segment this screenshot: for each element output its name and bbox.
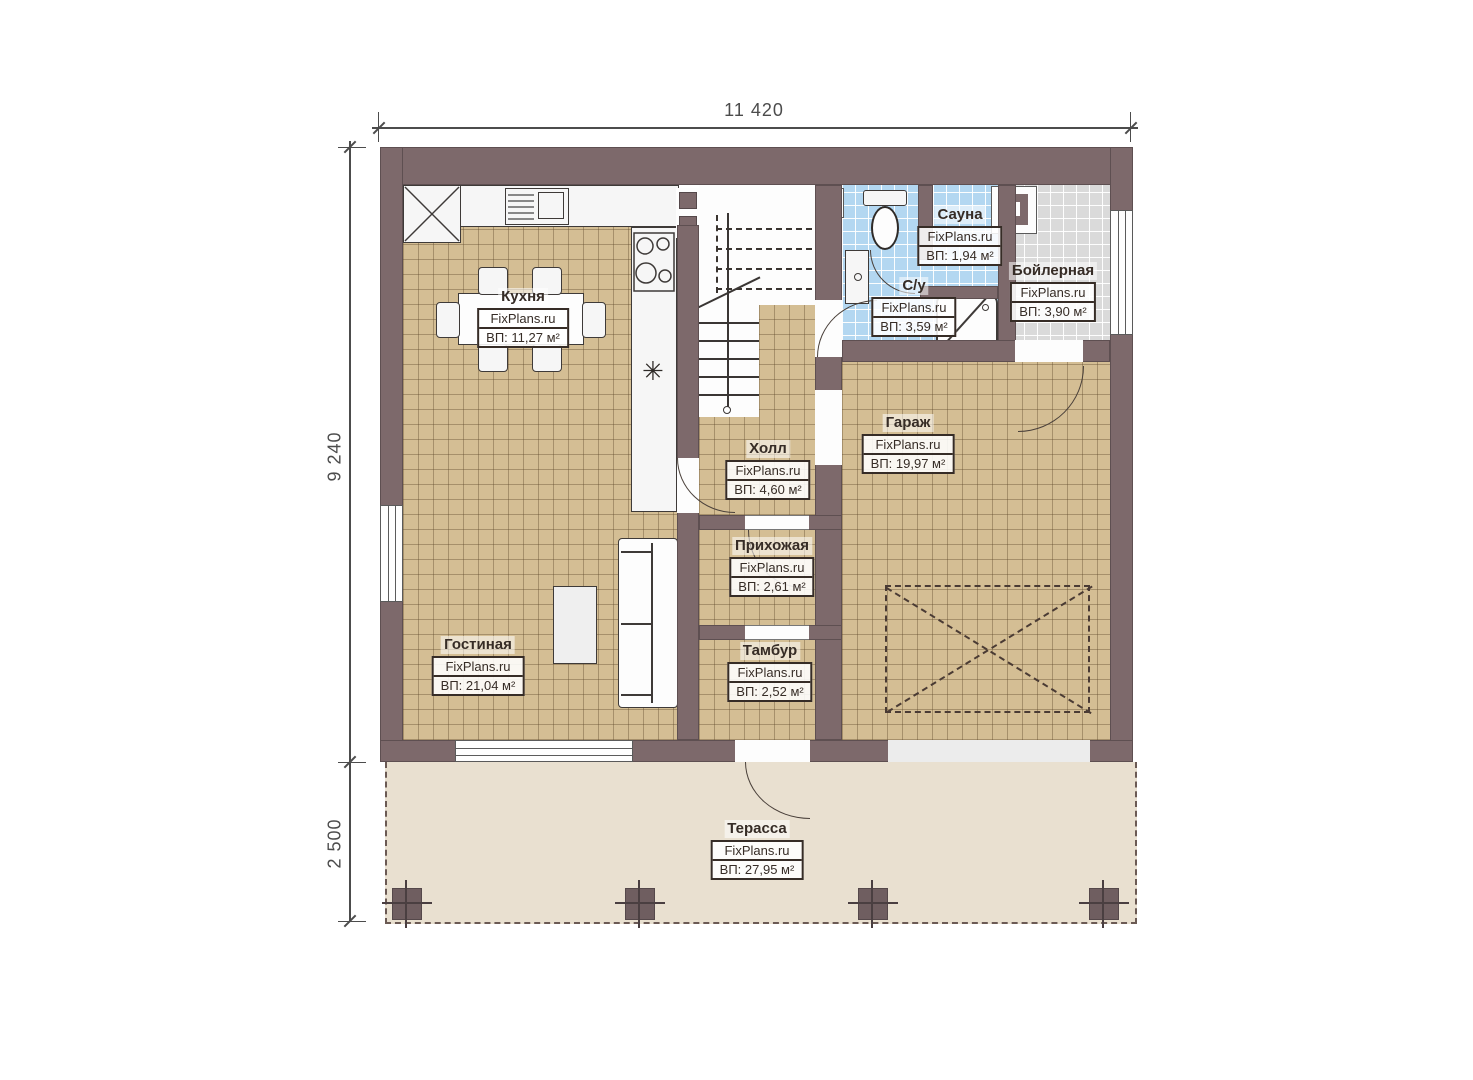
dim-ext-line	[338, 762, 366, 763]
wall-left	[380, 147, 403, 762]
room-name: Терасса	[724, 820, 789, 838]
dim-line-left	[349, 141, 351, 768]
room-name: Холл	[746, 440, 790, 458]
room-area: ВП: 4,60 м²	[727, 481, 808, 498]
stair-dashed-edge	[716, 215, 718, 293]
room-label-sauna: Сауна FixPlans.ru ВП: 1,94 м²	[917, 206, 1002, 266]
sofa-seat-line	[621, 623, 651, 625]
room-name: Гараж	[883, 414, 934, 432]
room-label-living: Гостиная FixPlans.ru ВП: 21,04 м²	[432, 636, 525, 696]
room-info-box: FixPlans.ru ВП: 11,27 м²	[477, 308, 569, 348]
watermark-text: FixPlans.ru	[919, 228, 1000, 247]
kitchen-sink-icon	[505, 188, 569, 225]
window-boiler-right	[1110, 210, 1133, 335]
stair-direction-line	[727, 213, 729, 409]
room-label-hall: Холл FixPlans.ru ВП: 4,60 м²	[725, 440, 810, 500]
door-opening-boiler-garage	[1015, 340, 1083, 362]
room-name: Бойлерная	[1009, 262, 1097, 280]
sofa-back-line	[651, 543, 653, 703]
toilet-icon	[871, 206, 899, 250]
dim-top-width: 11 420	[724, 100, 784, 121]
window-left	[380, 505, 403, 602]
toilet-tank	[863, 190, 907, 206]
x-cross-icon	[404, 186, 460, 242]
window-line	[456, 755, 632, 756]
stair-step-dashed	[716, 228, 812, 230]
sofa-armrest-line	[621, 694, 651, 696]
watermark-text: FixPlans.ru	[1012, 284, 1093, 303]
room-area: ВП: 2,52 м²	[729, 683, 810, 700]
watermark-text: FixPlans.ru	[434, 658, 523, 677]
stair-step	[699, 340, 759, 342]
window-line	[1125, 211, 1126, 334]
watermark-text: FixPlans.ru	[864, 436, 953, 455]
window-line	[456, 748, 632, 749]
stove-icon	[633, 232, 675, 292]
stair-step	[699, 322, 759, 324]
vent-shaft	[679, 192, 697, 209]
room-info-box: FixPlans.ru ВП: 4,60 м²	[725, 460, 810, 500]
terrace-post	[625, 888, 655, 920]
heater-knob	[854, 273, 862, 281]
window-line	[1118, 211, 1119, 334]
door-opening-garage	[815, 390, 842, 465]
door-opening-hall-entry	[745, 515, 809, 530]
stair-start-circle	[723, 406, 731, 414]
room-area: ВП: 1,94 м²	[919, 247, 1000, 264]
room-info-box: FixPlans.ru ВП: 1,94 м²	[917, 226, 1002, 266]
room-name: Гостиная	[441, 636, 515, 654]
dim-line-top	[372, 127, 1138, 129]
room-area: ВП: 3,90 м²	[1012, 303, 1093, 320]
dim-line-terrace	[349, 762, 351, 922]
room-area: ВП: 11,27 м²	[479, 329, 567, 346]
chair	[478, 344, 508, 372]
sink-basin	[538, 192, 564, 219]
room-area: ВП: 21,04 м²	[434, 677, 523, 694]
dim-left-height: 9 240	[325, 422, 346, 492]
stair-step-dashed	[716, 248, 812, 250]
terrace-post	[858, 888, 888, 920]
room-name: Тамбур	[740, 642, 800, 660]
shower-drain	[982, 304, 989, 311]
floor-plan-canvas: ✳	[0, 0, 1473, 1080]
room-info-box: FixPlans.ru ВП: 2,52 м²	[727, 662, 812, 702]
room-name: С/у	[899, 277, 928, 295]
sofa	[618, 538, 678, 708]
door-opening-tambour-terrace	[735, 740, 810, 762]
window-line	[388, 506, 389, 601]
terrace-post	[392, 888, 422, 920]
room-label-tambour: Тамбур FixPlans.ru ВП: 2,52 м²	[727, 642, 812, 702]
watermark-text: FixPlans.ru	[727, 462, 808, 481]
room-name: Прихожая	[732, 537, 812, 555]
watermark-text: FixPlans.ru	[713, 842, 802, 861]
room-label-garage: Гараж FixPlans.ru ВП: 19,97 м²	[862, 414, 955, 474]
water-heater-icon	[845, 250, 869, 304]
room-info-box: FixPlans.ru ВП: 21,04 м²	[432, 656, 525, 696]
fridge-icon: ✳	[642, 358, 664, 384]
dim-terrace-depth: 2 500	[325, 809, 346, 879]
room-info-box: FixPlans.ru ВП: 3,59 м²	[871, 297, 956, 337]
chair	[532, 344, 562, 372]
dim-ext-line	[338, 147, 366, 148]
sink-drainer	[508, 191, 534, 220]
stair-step	[699, 376, 759, 378]
chair	[582, 302, 606, 338]
stair-step	[699, 358, 759, 360]
room-name: Сауна	[934, 206, 985, 224]
watermark-text: FixPlans.ru	[729, 664, 810, 683]
sofa-armrest-line	[621, 551, 651, 553]
watermark-text: FixPlans.ru	[479, 310, 567, 329]
watermark-text: FixPlans.ru	[873, 299, 954, 318]
window-line	[395, 506, 396, 601]
watermark-text: FixPlans.ru	[731, 559, 812, 578]
room-info-box: FixPlans.ru ВП: 19,97 м²	[862, 434, 955, 474]
terrace-post	[1089, 888, 1119, 920]
room-name: Кухня	[498, 288, 548, 306]
door-opening-entry-tambour	[745, 625, 809, 640]
room-label-boiler: Бойлерная FixPlans.ru ВП: 3,90 м²	[1009, 262, 1097, 322]
room-label-entry: Прихожая FixPlans.ru ВП: 2,61 м²	[729, 537, 814, 597]
room-area: ВП: 19,97 м²	[864, 455, 953, 472]
wall-top	[380, 147, 1133, 185]
room-info-box: FixPlans.ru ВП: 3,90 м²	[1010, 282, 1095, 322]
stair-step	[699, 394, 759, 396]
room-info-box: FixPlans.ru ВП: 2,61 м²	[729, 557, 814, 597]
room-label-wc: С/у FixPlans.ru ВП: 3,59 м²	[871, 277, 956, 337]
room-area: ВП: 2,61 м²	[731, 578, 812, 595]
room-info-box: FixPlans.ru ВП: 27,95 м²	[711, 840, 804, 880]
coffee-table	[553, 586, 597, 664]
dim-ext-line	[338, 921, 366, 922]
room-area: ВП: 27,95 м²	[713, 861, 802, 878]
window-living-bottom	[455, 740, 633, 762]
room-label-kitchen: Кухня FixPlans.ru ВП: 11,27 м²	[477, 288, 569, 348]
chair	[436, 302, 460, 338]
room-label-terrace: Терасса FixPlans.ru ВП: 27,95 м²	[711, 820, 804, 880]
room-area: ВП: 3,59 м²	[873, 318, 954, 335]
stair-step-dashed	[716, 268, 812, 270]
garage-door-opening	[888, 740, 1090, 762]
kitchen-shaft-box	[403, 185, 461, 243]
